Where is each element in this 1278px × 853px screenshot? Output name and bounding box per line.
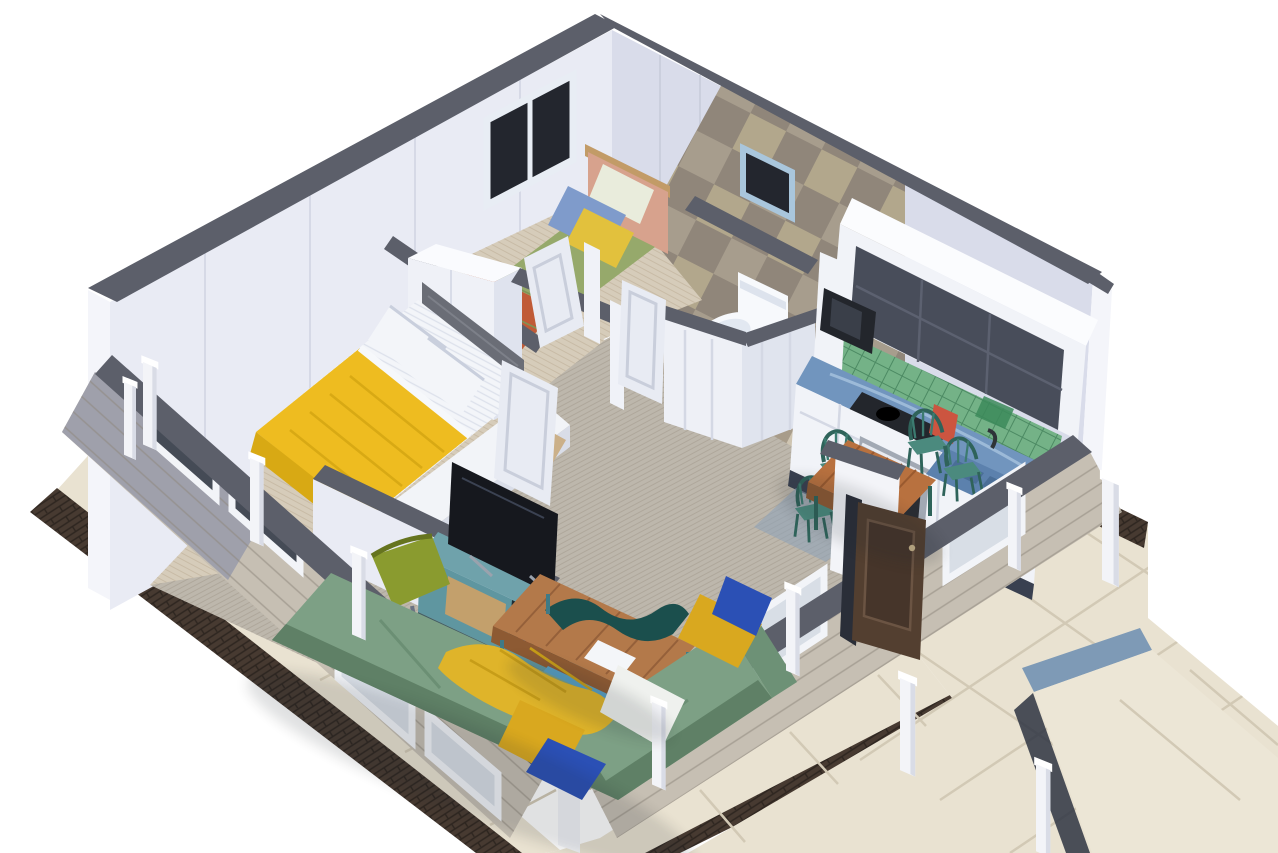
wall-post-5 (784, 581, 801, 676)
house-render-stage (0, 0, 1278, 853)
wall-post-2 (248, 451, 265, 546)
terrace-post-left (123, 376, 138, 460)
wall-post-3 (350, 545, 367, 640)
door-jamb-1 (584, 242, 600, 344)
isometric-house-svg (0, 0, 1278, 853)
terrace-post-low (1034, 757, 1052, 853)
kettle (876, 407, 900, 421)
wall-post-6 (1006, 482, 1022, 572)
wall-post-4 (650, 695, 667, 790)
terrace-post-tall (1100, 470, 1121, 588)
wall-post-1 (141, 355, 158, 450)
terrace-post-mid (898, 670, 917, 776)
